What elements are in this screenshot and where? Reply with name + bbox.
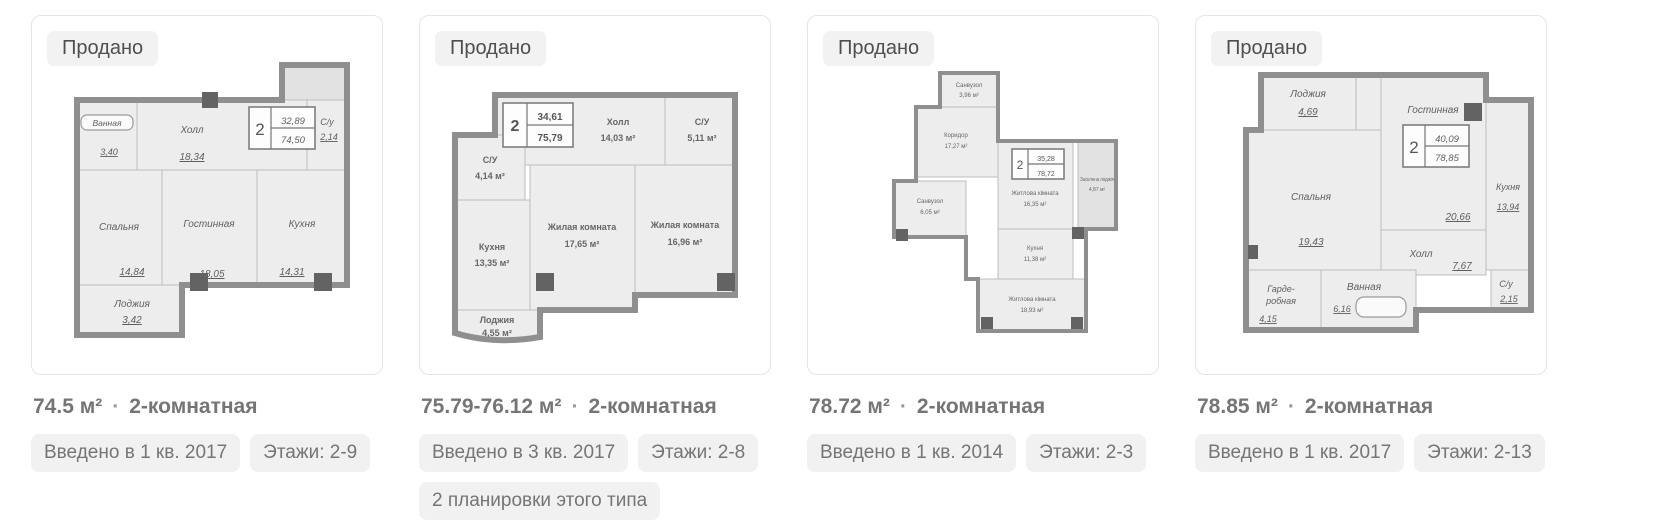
room-area: 18,93 м² — [1021, 308, 1044, 314]
room-label: Лоджия — [1289, 89, 1326, 100]
status-badge: Продано — [47, 31, 158, 66]
card-title: 74.5 м²·2-комнатная — [33, 395, 383, 419]
tag-commissioned: Введено в 3 кв. 2017 — [419, 434, 628, 472]
listing-card[interactable]: Продано 2 — [419, 15, 771, 520]
room-area: 2,15 — [1499, 294, 1519, 304]
card-title: 75.79-76.12 м²·2-комнатная — [421, 395, 771, 419]
room-area: 6,16 — [1333, 304, 1351, 314]
room-label: Кухня — [479, 242, 505, 252]
listings-row: Продано — [0, 0, 1680, 520]
floorplan-rooms — [77, 65, 347, 335]
card-title: 78.72 м²·2-комнатная — [809, 395, 1159, 419]
stamp-living-area: 40,09 — [1435, 134, 1459, 145]
room-area: 18,05 — [199, 269, 224, 280]
stamp-rooms: 2 — [1409, 138, 1418, 157]
tag-commissioned: Введено в 1 кв. 2017 — [1195, 434, 1404, 472]
room-label: Гарде- — [1267, 284, 1295, 294]
room-area: 4,15 — [1259, 314, 1278, 324]
room-area: 14,03 м² — [601, 133, 636, 143]
stamp-total-area: 75,79 — [537, 133, 562, 144]
room-label: Спальня — [1291, 192, 1332, 203]
listing-card[interactable]: Продано — [807, 15, 1159, 472]
separator-dot: · — [900, 395, 907, 418]
floorplan-rooms — [455, 95, 735, 340]
stamp-living-area: 34,61 — [537, 112, 562, 123]
floorplan-drawing: 2 40,09 78,85 Лоджия 4,69 Гостинная 20,6… — [1206, 45, 1536, 345]
room-label: Ванная — [92, 118, 121, 128]
room-area: 6,05 м² — [920, 210, 939, 216]
stamp-rooms: 2 — [511, 118, 520, 135]
room-label: Холл — [179, 125, 203, 136]
area-value: 74.5 м² — [33, 395, 102, 418]
stamp-living-area: 32,89 — [281, 116, 305, 127]
room-area: 14,31 — [279, 267, 304, 278]
status-badge: Продано — [1211, 31, 1322, 66]
room-label: С/у — [320, 117, 334, 127]
tag-list: Введено в 1 кв. 2017 Этажи: 2-9 — [31, 434, 383, 472]
room-label: Кухня — [1496, 182, 1520, 192]
room-area: 19,43 — [1298, 237, 1323, 248]
room-label: Лоджия — [480, 315, 515, 325]
area-value: 78.72 м² — [809, 395, 890, 418]
tag-commissioned: Введено в 1 кв. 2014 — [807, 434, 1016, 472]
apartment-stamp: 2 34,61 75,79 — [503, 103, 573, 147]
listing-card[interactable]: Продано — [1195, 15, 1547, 472]
room-label: робная — [1265, 296, 1296, 306]
room-area: 5,11 м² — [687, 133, 716, 143]
room-label: Холл — [1408, 249, 1432, 260]
room-area: 2,14 — [319, 132, 338, 142]
floorplan-image[interactable]: Продано — [1195, 15, 1547, 375]
room-area: 7,67 — [1452, 261, 1472, 272]
status-badge: Продано — [435, 31, 546, 66]
room-area: 14,84 — [119, 267, 144, 278]
room-label: Кухня — [289, 219, 316, 230]
room-label: Коридор — [944, 133, 968, 139]
stamp-total-area: 78,85 — [1435, 153, 1459, 164]
room-area: 4,69 — [1298, 107, 1318, 118]
room-label: Жилая комната — [547, 222, 617, 232]
room-label: Гостинная — [183, 219, 235, 230]
stamp-total-area: 78,72 — [1037, 171, 1055, 178]
room-type: 2-комнатная — [129, 395, 257, 418]
tag-floors: Этажи: 2-9 — [250, 434, 370, 472]
room-label: С/у — [1499, 279, 1513, 289]
room-area: 16,96 м² — [668, 237, 703, 247]
tag-floors: Этажи: 2-13 — [1414, 434, 1545, 472]
area-value: 75.79-76.12 м² — [421, 395, 561, 418]
stamp-rooms: 2 — [255, 120, 264, 139]
tag-floors: Этажи: 2-3 — [1026, 434, 1146, 472]
apartment-stamp: 2 35,28 78,72 — [1012, 149, 1064, 179]
room-label: Санвузол — [917, 199, 944, 205]
room-label: С/У — [695, 117, 710, 127]
floorplan-drawing: 2 35,28 78,72 Санвузол 3,96 м² Коридор 1… — [828, 45, 1138, 345]
floorplan-drawing: 2 34,61 75,79 Холл 14,03 м² С/У 5,11 м² … — [440, 45, 750, 345]
room-area: 3,42 — [122, 315, 142, 326]
floorplan-image[interactable]: Продано 2 — [419, 15, 771, 375]
card-title: 78.85 м²·2-комнатная — [1197, 395, 1547, 419]
floorplan-image[interactable]: Продано — [31, 15, 383, 375]
separator-dot: · — [1288, 395, 1295, 418]
room-area: 20,66 — [1444, 212, 1470, 223]
room-area: 11,38 м² — [1024, 257, 1046, 263]
room-area: 13,94 — [1497, 202, 1520, 212]
apartment-stamp: 2 40,09 78,85 — [1403, 125, 1469, 167]
room-label: Спальня — [99, 222, 140, 233]
room-label: Санвузол — [956, 83, 983, 89]
stamp-living-area: 35,28 — [1037, 156, 1055, 163]
room-area: 3,40 — [100, 147, 118, 157]
room-area: 16,35 м² — [1024, 202, 1047, 208]
room-label: Засклена лоджія — [1080, 177, 1114, 183]
stamp-total-area: 74,50 — [281, 135, 305, 146]
room-area: 17,65 м² — [565, 239, 600, 249]
apartment-stamp: 2 32,89 74,50 — [249, 107, 315, 149]
room-label: С/У — [483, 155, 498, 165]
separator-dot: · — [112, 395, 119, 418]
separator-dot: · — [571, 395, 578, 418]
room-area: 3,96 м² — [959, 93, 978, 99]
room-label: Ванная — [1347, 282, 1382, 293]
room-area: 4,14 м² — [475, 171, 505, 181]
room-label: Холл — [607, 117, 630, 127]
room-type: 2-комнатная — [1305, 395, 1433, 418]
floorplan-drawing: 2 32,89 74,50 Ванная 3,40 Холл 18,34 С/у… — [52, 45, 362, 345]
room-area: 17,27 м² — [945, 144, 968, 150]
tag-list: Введено в 3 кв. 2017 Этажи: 2-8 2 планир… — [419, 434, 771, 520]
room-type: 2-комнатная — [917, 395, 1045, 418]
room-label: Лоджия — [113, 299, 150, 310]
room-label: Гостинная — [1407, 105, 1459, 116]
room-label: Житлова кімната — [1008, 297, 1056, 303]
room-label: Житлова кімната — [1011, 191, 1059, 197]
tag-commissioned: Введено в 1 кв. 2017 — [31, 434, 240, 472]
tag-layout-count: 2 планировки этого типа — [419, 482, 660, 520]
tag-list: Введено в 1 кв. 2014 Этажи: 2-3 — [807, 434, 1159, 472]
room-type: 2-комнатная — [588, 395, 716, 418]
room-label: Кухня — [1027, 246, 1043, 252]
listing-card[interactable]: Продано — [31, 15, 383, 472]
room-area: 18,34 — [179, 152, 204, 163]
area-value: 78.85 м² — [1197, 395, 1278, 418]
room-area: 13,35 м² — [475, 258, 510, 268]
room-area: 4,87 м² — [1089, 187, 1106, 193]
status-badge: Продано — [823, 31, 934, 66]
room-label: Жилая комната — [650, 220, 720, 230]
room-area: 4,55 м² — [482, 328, 512, 338]
tag-list: Введено в 1 кв. 2017 Этажи: 2-13 — [1195, 434, 1547, 472]
tag-floors: Этажи: 2-8 — [638, 434, 758, 472]
floorplan-image[interactable]: Продано — [807, 15, 1159, 375]
stamp-rooms: 2 — [1017, 158, 1024, 172]
